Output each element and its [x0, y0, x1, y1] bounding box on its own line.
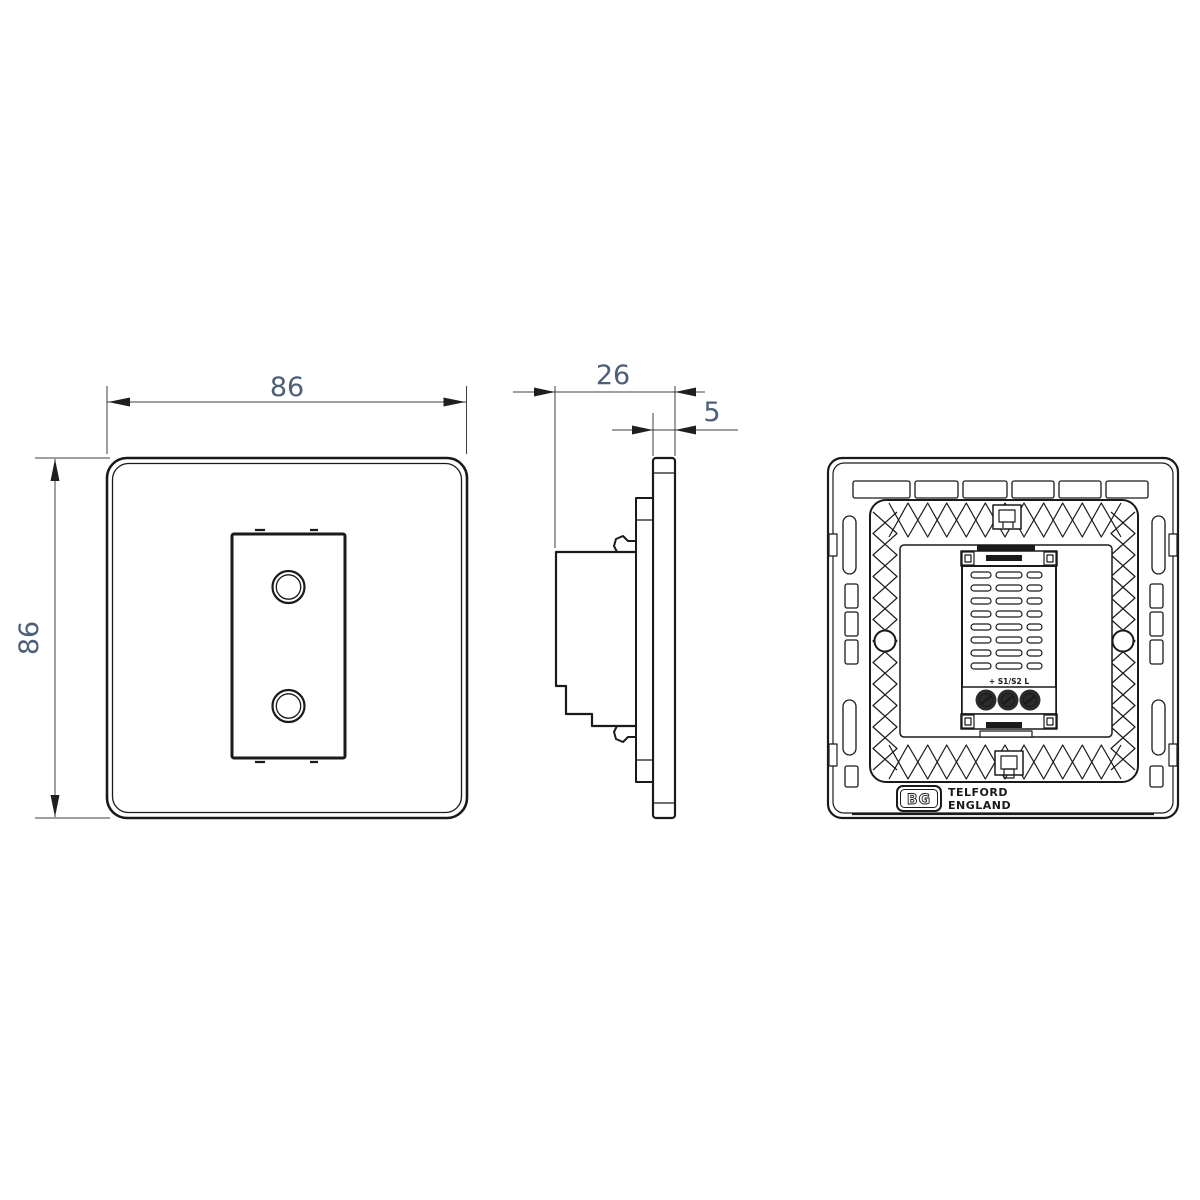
dimmer-touch-button — [232, 530, 345, 762]
technical-drawing: 86 86 — [0, 0, 1200, 1200]
grid-latch-bottom — [995, 751, 1023, 778]
terminal-screw — [998, 690, 1019, 711]
front-view: 86 86 — [14, 372, 467, 818]
dimension-depth: 26 — [513, 360, 705, 548]
front-height-value: 86 — [14, 621, 45, 655]
faceplate-profile — [653, 458, 675, 818]
grid-screw-hole-right — [1113, 631, 1134, 652]
terminal-block — [962, 687, 1056, 714]
side-view: 26 5 — [513, 360, 738, 818]
dimension-width: 86 — [107, 372, 467, 454]
side-profile — [556, 458, 675, 818]
grid-screw-hole-left — [875, 631, 896, 652]
plate-thickness-value: 5 — [703, 397, 720, 428]
back-view: + S1/S2 L — [828, 458, 1178, 818]
module-clamp-top — [961, 551, 1057, 566]
depth-value: 26 — [596, 360, 630, 391]
terminal-screw — [976, 690, 997, 711]
bg-logo: BG — [897, 786, 941, 811]
origin-line1: TELFORD — [948, 786, 1008, 799]
bg-logo-text: BG — [907, 792, 931, 808]
drawing-sheet: 86 86 — [0, 0, 1200, 1200]
terminal-label: + S1/S2 L — [989, 677, 1029, 686]
mounting-frame-profile — [636, 498, 653, 782]
front-width-value: 86 — [270, 372, 304, 403]
top-clip-profile — [614, 536, 636, 552]
branding: BG TELFORD ENGLAND — [897, 786, 1011, 812]
origin-line2: ENGLAND — [948, 799, 1011, 812]
terminal-screw — [1020, 690, 1041, 711]
module-body-profile — [556, 552, 636, 726]
bottom-clip-profile — [614, 726, 636, 742]
grid-latch-top — [993, 505, 1021, 529]
dimension-height: 86 — [14, 458, 110, 818]
dimmer-module: + S1/S2 L — [961, 545, 1057, 737]
